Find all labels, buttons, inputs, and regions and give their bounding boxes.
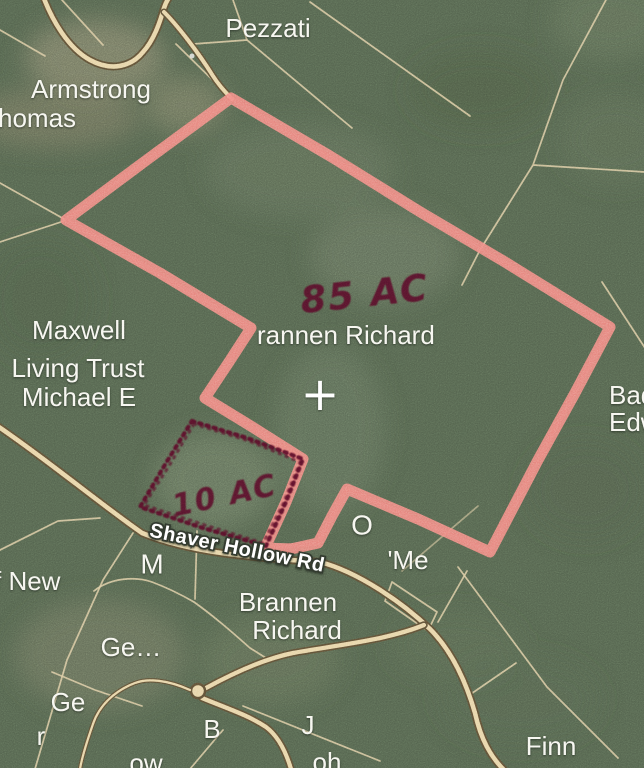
photo-grain-overlay bbox=[0, 0, 644, 768]
map-canvas[interactable]: Pezzati Armstrong homas Maxwell Living T… bbox=[0, 0, 644, 768]
